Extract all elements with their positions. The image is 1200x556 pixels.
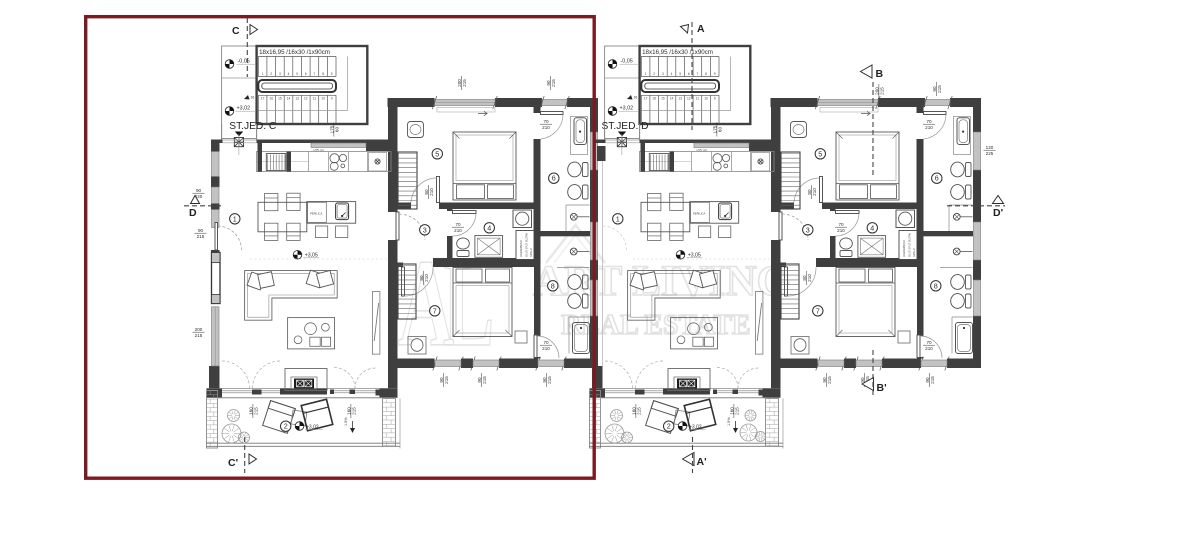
svg-text:210: 210 — [429, 188, 434, 196]
svg-text:80: 80 — [419, 275, 424, 281]
svg-text:7: 7 — [816, 306, 820, 315]
svg-text:200: 200 — [874, 87, 879, 95]
svg-text:3: 3 — [806, 225, 810, 234]
svg-text:18x16,95 /16x30 /1x90cm: 18x16,95 /16x30 /1x90cm — [642, 49, 713, 56]
svg-text:4: 4 — [288, 72, 290, 76]
svg-text:17: 17 — [644, 96, 648, 100]
svg-text:210: 210 — [837, 228, 845, 233]
svg-text:7: 7 — [433, 306, 437, 315]
svg-text:70: 70 — [543, 340, 549, 345]
svg-text:215: 215 — [637, 407, 642, 415]
svg-text:90: 90 — [196, 188, 202, 193]
svg-text:7: 7 — [697, 72, 699, 76]
svg-text:215: 215 — [352, 407, 357, 415]
svg-text:215: 215 — [462, 79, 467, 87]
svg-text:13: 13 — [678, 96, 682, 100]
svg-text:9: 9 — [331, 96, 333, 100]
svg-text:215: 215 — [254, 407, 259, 415]
svg-text:70: 70 — [926, 119, 932, 124]
svg-text:210: 210 — [807, 274, 812, 282]
svg-text:2: 2 — [284, 422, 288, 431]
svg-text:PERILICA: PERILICA — [310, 212, 322, 216]
svg-text:UGRADBENO: UGRADBENO — [519, 240, 523, 257]
svg-text:6: 6 — [688, 72, 690, 76]
svg-text:70: 70 — [838, 222, 844, 227]
svg-text:90: 90 — [546, 80, 551, 86]
svg-text:1: 1 — [262, 72, 264, 76]
svg-text:14: 14 — [670, 96, 674, 100]
svg-text:215: 215 — [482, 376, 487, 384]
svg-text:210: 210 — [424, 274, 429, 282]
svg-text:215: 215 — [444, 376, 449, 384]
svg-text:210: 210 — [812, 188, 817, 196]
svg-text:D: D — [189, 207, 197, 219]
svg-text:D': D' — [993, 207, 1003, 219]
svg-text:210: 210 — [925, 346, 933, 351]
svg-text:4: 4 — [671, 72, 673, 76]
svg-text:225: 225 — [986, 151, 994, 156]
svg-text:A': A' — [697, 456, 707, 468]
svg-text:5: 5 — [818, 149, 822, 158]
svg-text:215: 215 — [197, 234, 205, 239]
svg-text:1: 1 — [233, 214, 237, 223]
svg-text:2: 2 — [270, 72, 272, 76]
svg-text:70: 70 — [926, 340, 932, 345]
svg-text:210: 210 — [542, 346, 550, 351]
svg-text:DIZALO: DIZALO — [913, 248, 916, 257]
svg-text:60: 60 — [335, 127, 340, 133]
svg-text:70: 70 — [543, 119, 549, 124]
svg-text:90: 90 — [932, 86, 937, 92]
svg-text:215: 215 — [551, 79, 556, 87]
svg-text:ST.JED. D: ST.JED. D — [602, 121, 649, 132]
svg-text:6: 6 — [552, 174, 556, 183]
svg-text:9: 9 — [714, 96, 716, 100]
svg-text:-0,05: -0,05 — [238, 59, 250, 65]
svg-text:A: A — [697, 23, 705, 35]
svg-text:160: 160 — [631, 407, 636, 415]
svg-text:12: 12 — [304, 96, 308, 100]
svg-text:14: 14 — [287, 96, 291, 100]
svg-text:5: 5 — [679, 72, 681, 76]
svg-text:160: 160 — [729, 407, 734, 415]
svg-text:120: 120 — [986, 145, 994, 150]
svg-text:90: 90 — [477, 377, 482, 383]
svg-text:5: 5 — [296, 72, 298, 76]
svg-text:15: 15 — [278, 96, 282, 100]
svg-text:MULTI SPLIT SUSTAV: MULTI SPLIT SUSTAV — [909, 232, 912, 257]
svg-text:8: 8 — [934, 281, 938, 290]
svg-text:1.5%: 1.5% — [344, 417, 348, 426]
svg-text:80: 80 — [424, 189, 429, 195]
svg-text:4: 4 — [870, 223, 874, 232]
svg-text:AL: AL — [398, 234, 491, 372]
svg-text:18x16,95 /16x30 /1x90cm: 18x16,95 /16x30 /1x90cm — [259, 49, 330, 56]
svg-text:11: 11 — [313, 96, 317, 100]
svg-text:7: 7 — [314, 72, 316, 76]
svg-text:PERILICA: PERILICA — [693, 212, 705, 216]
svg-text:9: 9 — [331, 72, 333, 76]
svg-text:160: 160 — [346, 407, 351, 415]
svg-text:16: 16 — [634, 96, 638, 100]
svg-text:+3,02: +3,02 — [620, 106, 634, 112]
svg-text:2: 2 — [653, 72, 655, 76]
svg-text:C: C — [232, 25, 240, 37]
svg-text:1.5%: 1.5% — [727, 417, 731, 426]
svg-text:8: 8 — [322, 72, 324, 76]
svg-text:175: 175 — [329, 125, 334, 133]
svg-text:215: 215 — [880, 87, 885, 95]
svg-text:-0,05: -0,05 — [621, 59, 633, 65]
svg-text:+3,02: +3,02 — [237, 106, 251, 112]
svg-text:210: 210 — [454, 228, 462, 233]
svg-text:3: 3 — [662, 72, 664, 76]
svg-text:80: 80 — [802, 275, 807, 281]
svg-text:UGRADBENO: UGRADBENO — [902, 240, 906, 257]
svg-text:215: 215 — [735, 407, 740, 415]
svg-text:4: 4 — [487, 223, 491, 232]
svg-text:11: 11 — [696, 96, 700, 100]
svg-text:80: 80 — [807, 189, 812, 195]
svg-text:15: 15 — [661, 96, 665, 100]
svg-text:90: 90 — [925, 377, 930, 383]
svg-text:5: 5 — [435, 149, 439, 158]
svg-text:215: 215 — [195, 333, 203, 338]
svg-text:6: 6 — [305, 72, 307, 76]
svg-text:DIZALO: DIZALO — [530, 248, 533, 257]
svg-text:ST.JED. C: ST.JED. C — [229, 121, 276, 132]
svg-text:10: 10 — [704, 96, 708, 100]
svg-text:17: 17 — [261, 96, 265, 100]
svg-text:MULTI SPLIT SUSTAV: MULTI SPLIT SUSTAV — [526, 232, 529, 257]
svg-text:70: 70 — [455, 222, 461, 227]
svg-text:B': B' — [877, 382, 887, 394]
svg-text:10: 10 — [321, 96, 325, 100]
svg-text:90: 90 — [860, 377, 865, 383]
svg-text:160: 160 — [248, 407, 253, 415]
svg-text:215: 215 — [827, 376, 832, 384]
svg-text:90: 90 — [198, 228, 204, 233]
svg-text:8: 8 — [551, 281, 555, 290]
svg-text:215: 215 — [937, 85, 942, 93]
svg-text:16: 16 — [652, 96, 656, 100]
svg-text:175: 175 — [712, 125, 717, 133]
svg-text:B: B — [876, 68, 884, 80]
svg-text:3: 3 — [423, 225, 427, 234]
svg-text:9: 9 — [714, 72, 716, 76]
svg-text:200: 200 — [457, 79, 462, 87]
svg-text:90: 90 — [822, 377, 827, 383]
svg-text:12: 12 — [687, 96, 691, 100]
svg-text:1: 1 — [645, 72, 647, 76]
svg-text:215: 215 — [930, 376, 935, 384]
svg-text:8: 8 — [705, 72, 707, 76]
svg-text:16: 16 — [269, 96, 273, 100]
svg-text:1: 1 — [616, 214, 620, 223]
svg-text:90: 90 — [542, 377, 547, 383]
svg-text:60: 60 — [718, 127, 723, 133]
svg-text:2: 2 — [667, 422, 671, 431]
svg-text:200: 200 — [195, 327, 203, 332]
svg-text:210: 210 — [542, 125, 550, 130]
svg-text:6: 6 — [935, 174, 939, 183]
svg-text:215: 215 — [547, 376, 552, 384]
svg-text:210: 210 — [925, 125, 933, 130]
svg-text:13: 13 — [295, 96, 299, 100]
svg-text:3: 3 — [279, 72, 281, 76]
svg-text:90: 90 — [439, 377, 444, 383]
svg-text:C': C' — [228, 457, 238, 469]
svg-text:16: 16 — [251, 96, 255, 100]
